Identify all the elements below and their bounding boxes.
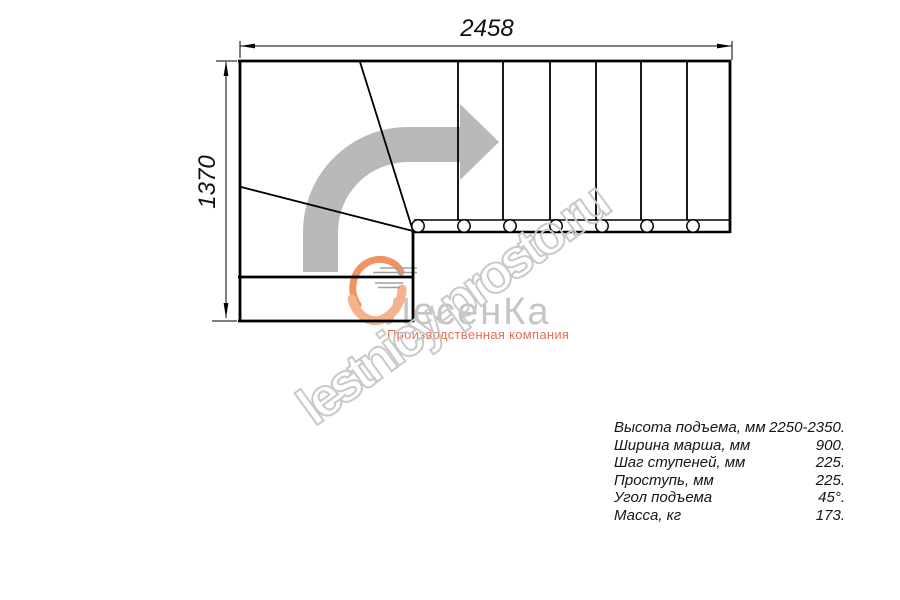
dim-arrowhead-down <box>224 303 229 318</box>
spec-value: 2250-2350. <box>769 419 845 437</box>
dim-arrowhead-left <box>240 44 255 49</box>
spec-row: Проступь, мм 225. <box>614 472 845 490</box>
spec-label: Проступь, мм <box>614 472 714 490</box>
dimension-width-label: 2458 <box>427 14 547 44</box>
spec-row: Ширина марша, мм 900. <box>614 437 845 455</box>
spec-row: Высота подъема, мм 2250-2350. <box>614 419 845 437</box>
baluster-circle <box>458 220 470 232</box>
spec-value: 225. <box>816 454 845 472</box>
specs-table: Высота подъема, мм 2250-2350. Ширина мар… <box>614 419 845 525</box>
baluster-circle <box>687 220 699 232</box>
spec-value: 225. <box>816 472 845 490</box>
spec-row: Масса, кг 173. <box>614 507 845 525</box>
spec-label: Угол подъема <box>614 489 712 507</box>
spec-label: Высота подъема, мм <box>614 419 766 437</box>
spec-value: 173. <box>816 507 845 525</box>
spec-value: 900. <box>816 437 845 455</box>
dim-arrowhead-right <box>717 44 732 49</box>
spec-label: Масса, кг <box>614 507 681 525</box>
spec-row: Шаг ступеней, мм 225. <box>614 454 845 472</box>
spec-row: Угол подъема 45°. <box>614 489 845 507</box>
spec-label: Шаг ступеней, мм <box>614 454 745 472</box>
dimension-height-label: 1370 <box>193 122 223 242</box>
spec-value: 45°. <box>818 489 845 507</box>
baluster-circle <box>641 220 653 232</box>
stair-plan-page: ЛесенКа Производственная компания lestni… <box>0 0 900 600</box>
logo-swirl-icon <box>353 259 401 305</box>
baluster-circle <box>412 220 424 232</box>
dim-arrowhead-up <box>224 61 229 76</box>
spec-label: Ширина марша, мм <box>614 437 750 455</box>
